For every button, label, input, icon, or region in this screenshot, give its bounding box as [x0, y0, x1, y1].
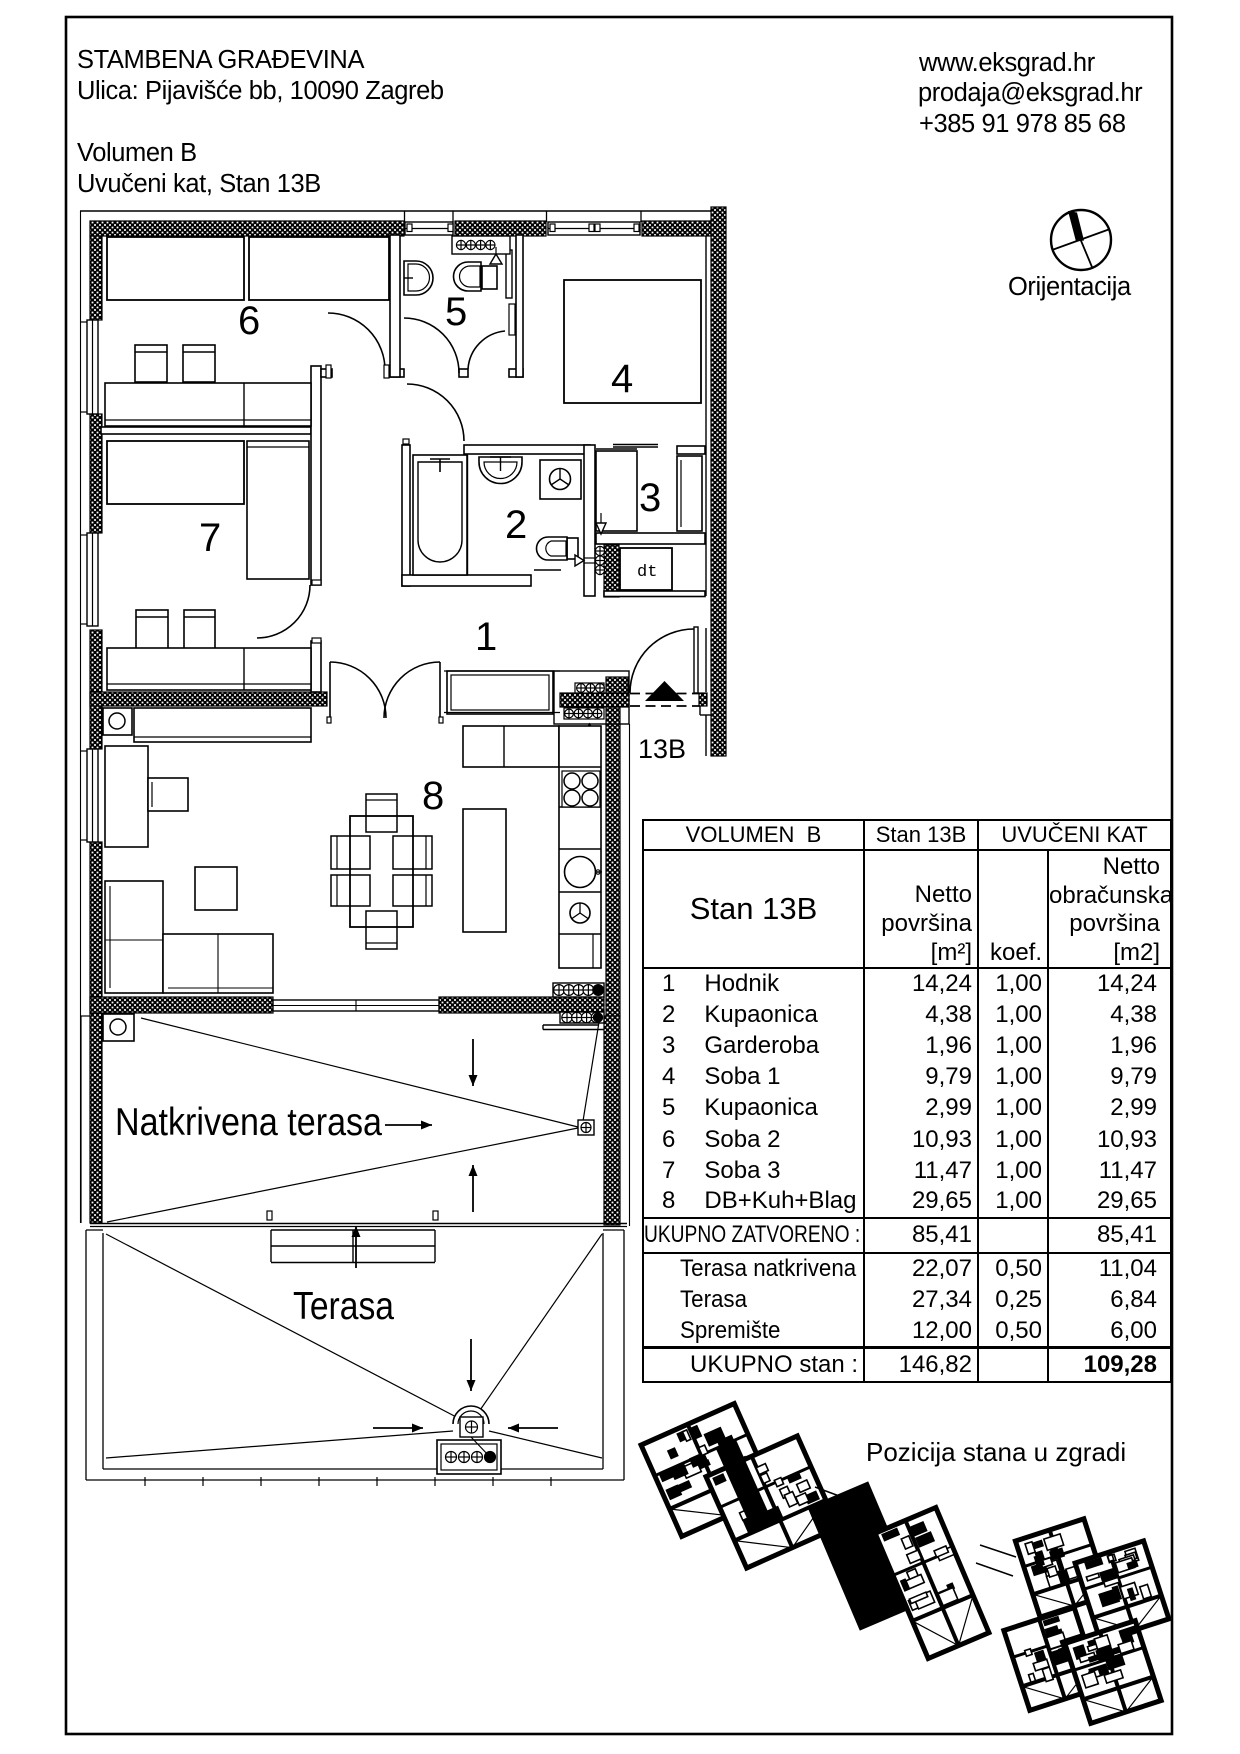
svg-text:6: 6	[238, 299, 260, 343]
svg-text:4: 4	[611, 357, 633, 401]
svg-text:8: 8	[422, 774, 444, 818]
svg-text:13B: 13B	[638, 734, 686, 764]
svg-text:dt: dt	[637, 563, 657, 582]
svg-text:Terasa: Terasa	[293, 1285, 394, 1328]
svg-text:2: 2	[505, 503, 527, 547]
svg-text:5: 5	[445, 290, 467, 334]
svg-text:7: 7	[199, 516, 221, 560]
svg-text:Natkrivena terasa: Natkrivena terasa	[115, 1101, 382, 1144]
svg-text:1: 1	[475, 615, 497, 659]
svg-text:Pozicija stana u zgradi: Pozicija stana u zgradi	[866, 1437, 1126, 1467]
svg-text:3: 3	[639, 476, 661, 520]
